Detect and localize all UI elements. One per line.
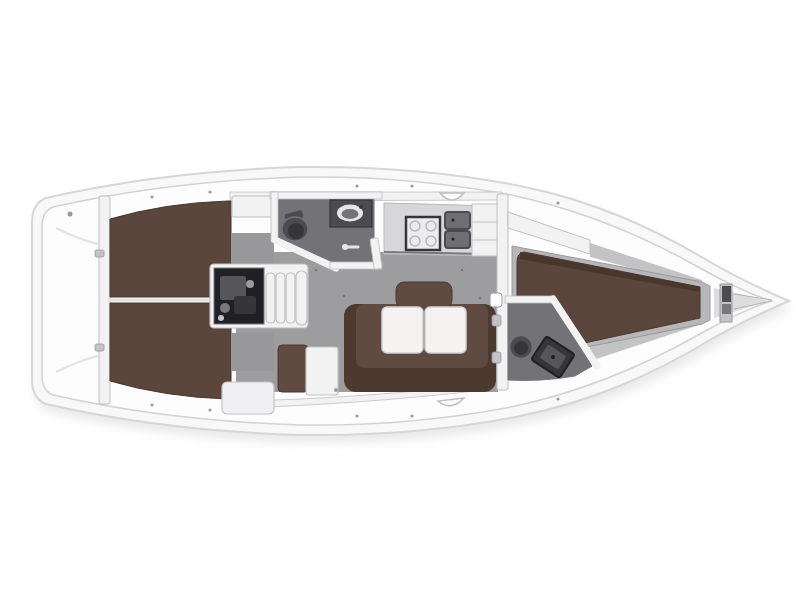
aft-washbasin-bowl xyxy=(342,209,359,219)
sofa-backrest xyxy=(396,282,452,308)
galley xyxy=(384,203,498,256)
galley-locker xyxy=(472,204,498,256)
companionway-steps xyxy=(266,271,307,325)
transom-hinge-bottom xyxy=(95,344,104,351)
stern-cleat xyxy=(68,212,73,217)
sink-drain-bottom xyxy=(452,238,455,241)
forward-toilet-bowl xyxy=(514,341,528,355)
aft-locker-top xyxy=(232,196,272,217)
door-hinge-top xyxy=(492,315,501,326)
aft-head-wall-left xyxy=(271,192,278,242)
chart-table xyxy=(306,347,338,395)
aft-basin-faucet xyxy=(359,205,363,209)
anchor-windlass-icon xyxy=(722,286,731,302)
folding-table-leaf-left xyxy=(382,307,423,353)
galley-sink-bottom-icon xyxy=(445,231,470,248)
cockpit-locker xyxy=(222,382,274,414)
transom-hinge-top xyxy=(95,250,104,257)
yacht-floorplan xyxy=(0,0,800,600)
aft-toilet-bowl xyxy=(288,223,304,239)
folding-table-leaf-right xyxy=(425,307,466,353)
sink-drain-top xyxy=(452,219,455,222)
door-hinge-bottom xyxy=(492,352,501,363)
forward-head-wall-top xyxy=(505,296,555,303)
aft-shower-head xyxy=(342,244,348,250)
aft-head-wall-top xyxy=(270,192,382,199)
windlass-motor xyxy=(722,304,731,314)
galley-sink-top-icon xyxy=(445,212,470,229)
aft-corridor-bottom xyxy=(232,333,274,371)
door-latch xyxy=(490,293,502,307)
chart-table-seat xyxy=(278,345,308,392)
companionway xyxy=(210,264,308,328)
nav-fitting xyxy=(334,388,338,392)
yacht-floorplan-page xyxy=(0,0,800,600)
